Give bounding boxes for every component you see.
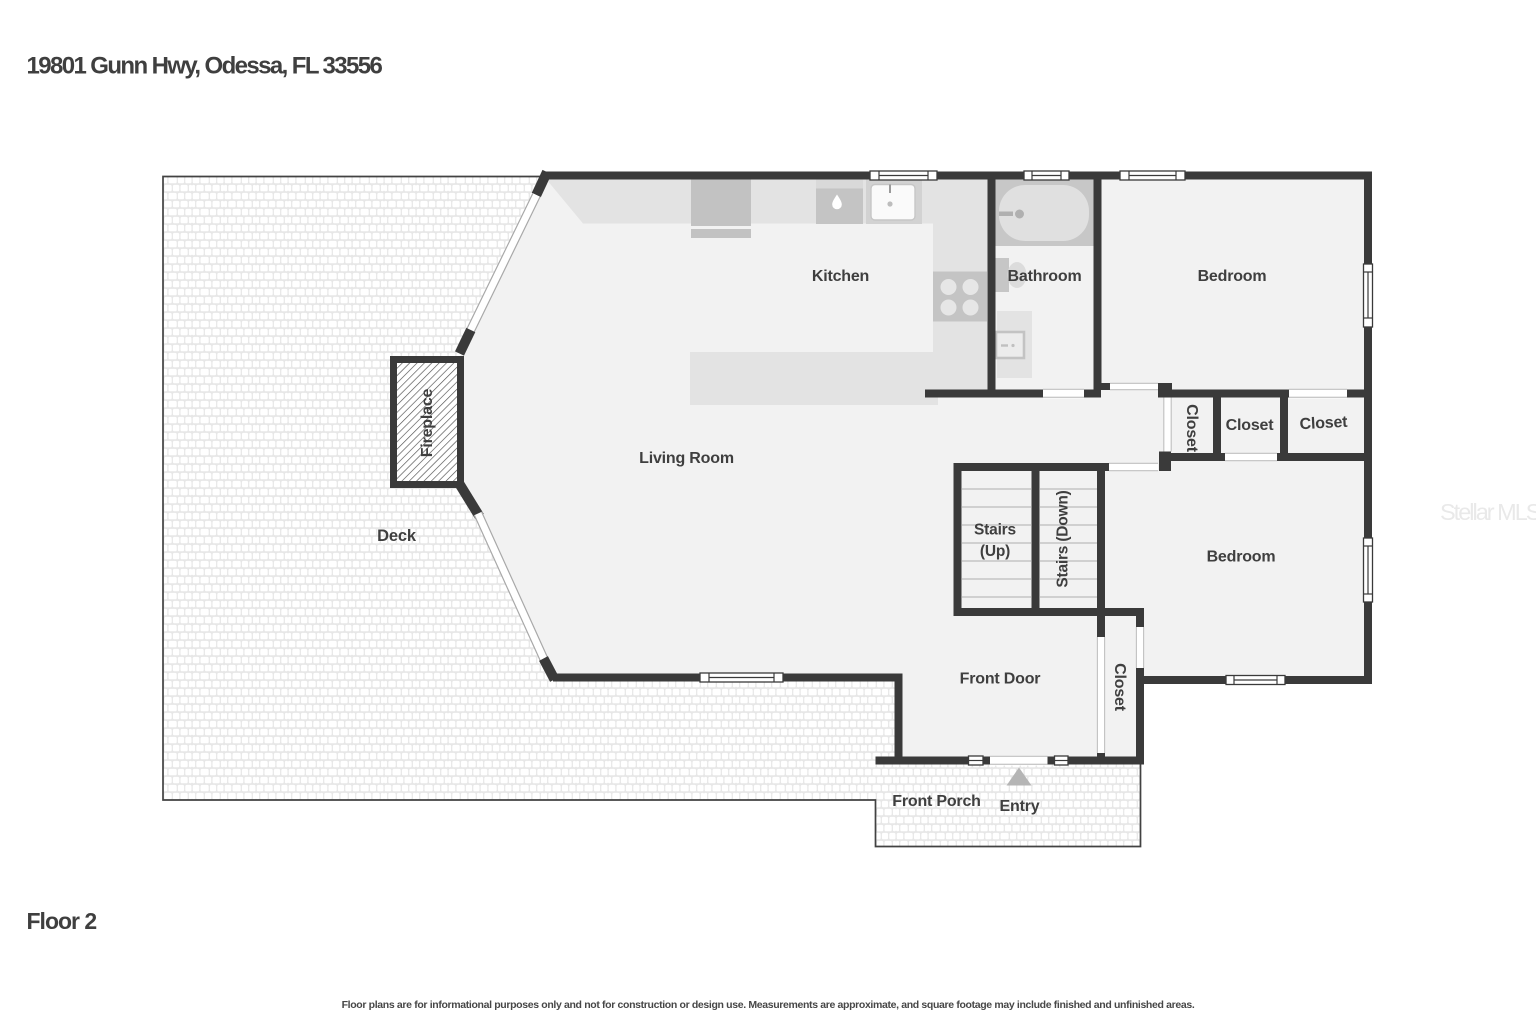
svg-text:Bedroom: Bedroom: [1207, 549, 1276, 566]
svg-text:Closet: Closet: [1111, 663, 1128, 712]
svg-text:Bathroom: Bathroom: [1008, 268, 1082, 285]
svg-text:Closet: Closet: [1299, 414, 1348, 434]
svg-text:Stairs: Stairs: [974, 522, 1016, 539]
svg-text:Entry: Entry: [1000, 798, 1040, 815]
svg-text:Kitchen: Kitchen: [812, 268, 869, 285]
svg-text:Stellar MLS: Stellar MLS: [1440, 499, 1536, 525]
svg-text:Floor plans are for informatio: Floor plans are for informational purpos…: [342, 999, 1195, 1011]
svg-text:(Up): (Up): [980, 543, 1010, 560]
svg-text:Front Porch: Front Porch: [892, 793, 980, 810]
svg-text:Closet: Closet: [1226, 417, 1275, 434]
svg-text:Stairs (Down): Stairs (Down): [1055, 490, 1072, 587]
svg-text:Front Door: Front Door: [960, 671, 1041, 688]
svg-text:Fireplace: Fireplace: [419, 388, 436, 457]
svg-text:Bedroom: Bedroom: [1198, 268, 1267, 285]
svg-text:Living Room: Living Room: [639, 450, 734, 467]
svg-text:Deck: Deck: [377, 527, 417, 545]
svg-text:19801 Gunn Hwy, Odessa, FL 335: 19801 Gunn Hwy, Odessa, FL 33556: [27, 53, 383, 80]
svg-text:Floor 2: Floor 2: [27, 908, 97, 934]
svg-text:Closet: Closet: [1183, 404, 1200, 453]
